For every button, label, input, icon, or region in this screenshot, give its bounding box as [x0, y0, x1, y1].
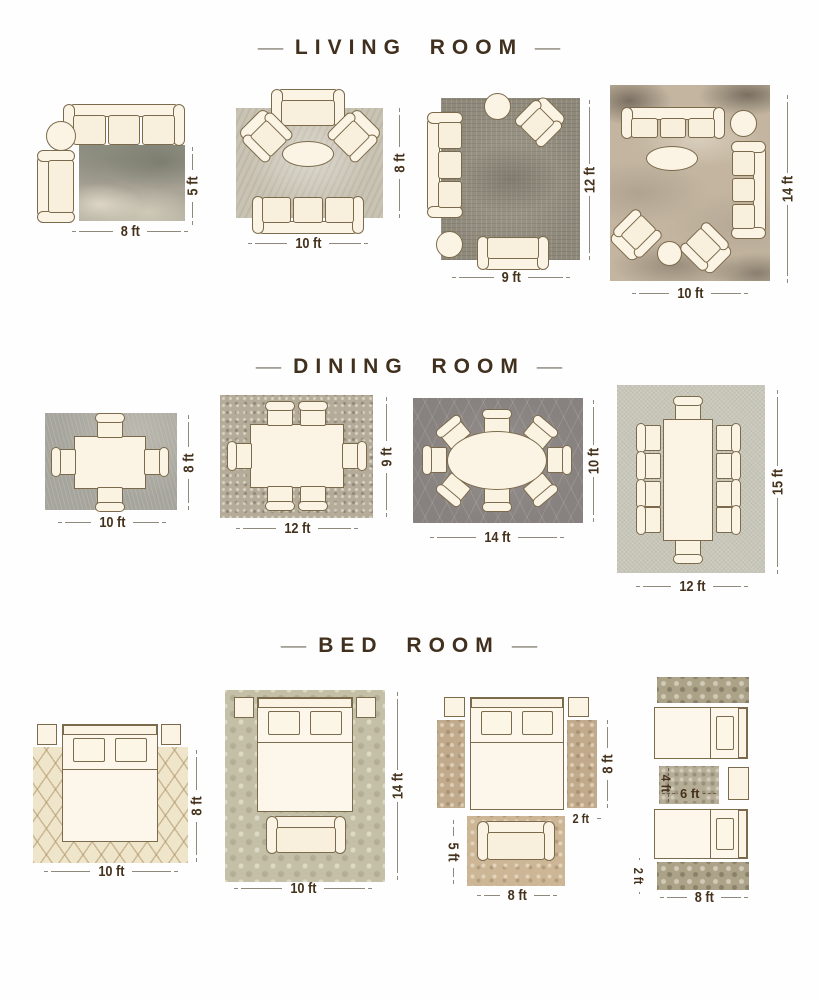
pillow — [716, 716, 734, 750]
pillow — [716, 818, 734, 850]
dimension-line — [639, 858, 640, 860]
dimension-label: 2 ft — [623, 868, 655, 885]
dimension-runner-height: 2 ft — [630, 858, 648, 894]
bed-fold-line — [710, 810, 711, 858]
runner-rug — [657, 677, 749, 703]
dimension-label: 6 ft — [678, 786, 702, 801]
dimension-runner-width: 8 ft — [660, 888, 748, 906]
bed-fold-line — [710, 708, 711, 758]
dimension-label: 4 ft — [658, 775, 673, 793]
dimension-line — [660, 897, 687, 898]
dimension-line — [639, 892, 640, 894]
diagram-bedroom-twin-beds: 4 ft 6 ft 2 ft 8 ft — [0, 0, 818, 1000]
headboard — [738, 810, 747, 858]
dimension-line — [721, 897, 748, 898]
dimension-label: 8 ft — [689, 889, 718, 906]
headboard — [738, 708, 747, 758]
runner-rug — [657, 862, 749, 890]
rug-size-guide: — LIVING ROOM — 5 ft 8 ft — [0, 0, 818, 1000]
twin-bed — [654, 809, 748, 859]
twin-bed — [654, 707, 748, 759]
nightstand — [728, 767, 749, 800]
